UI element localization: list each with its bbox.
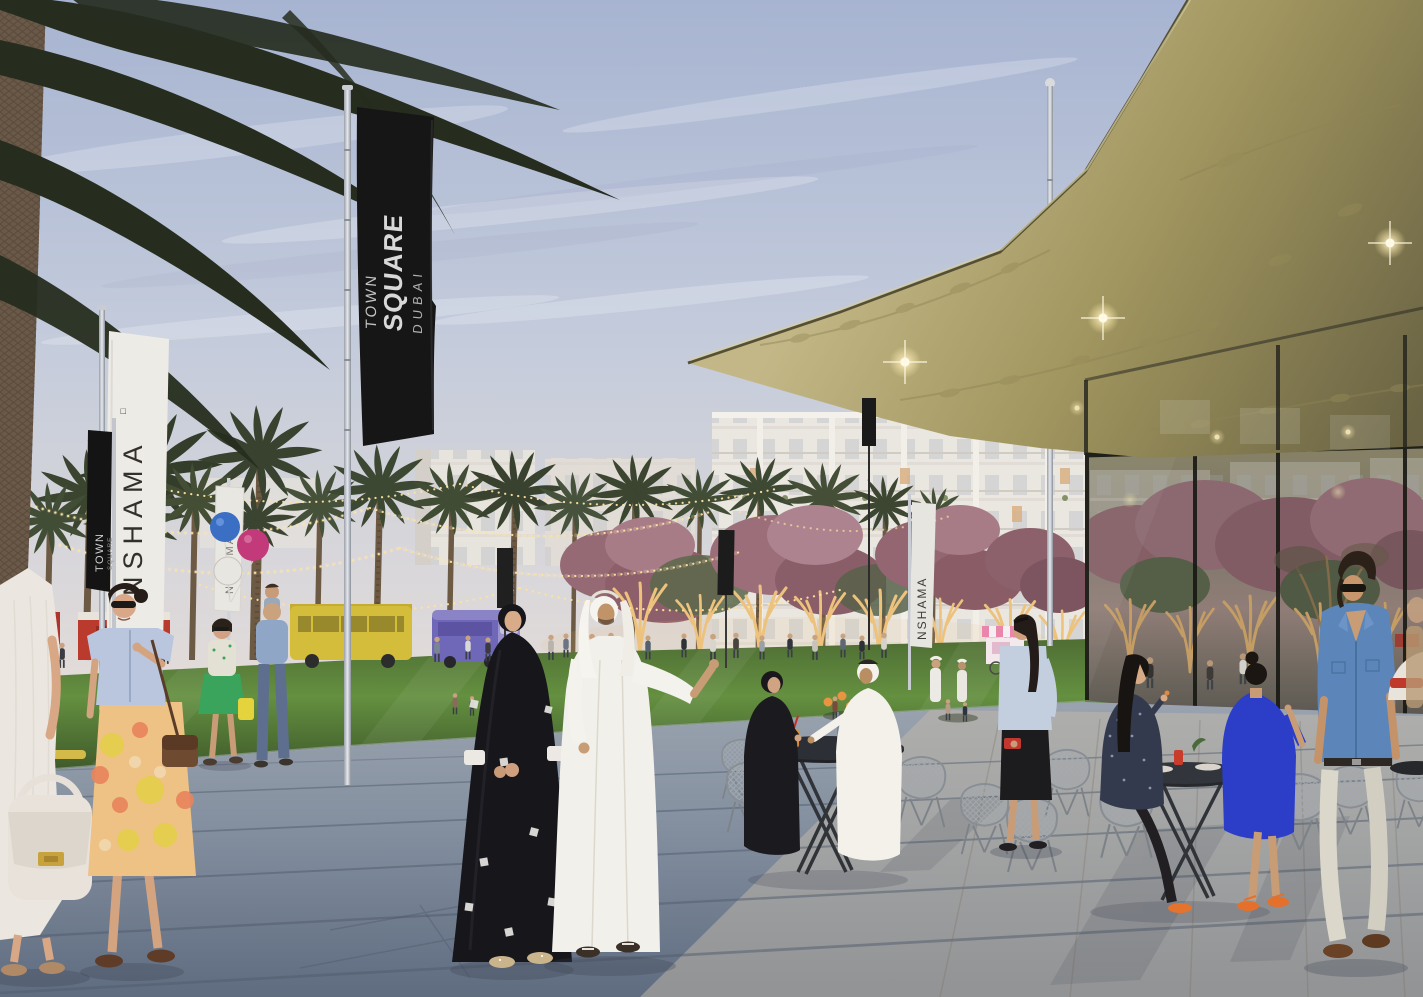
banner-nshama-park-text: NSHAMA [915, 577, 929, 640]
balloon-blue [210, 512, 240, 542]
balloon-white [214, 557, 242, 585]
banner-nshama-left-text: NSHAMA [118, 438, 148, 596]
blue-shirt [96, 628, 166, 705]
banner-main-line3: DUBAI [410, 268, 425, 334]
banner-town-small-line1: TOWN [94, 533, 106, 572]
cropped-figure-right-edge [1406, 597, 1423, 708]
sunglasses [1340, 584, 1366, 592]
banner-town-small-line2: SQUARE [107, 537, 114, 570]
balloon-magenta [237, 529, 269, 561]
speaker-on-pole [862, 398, 876, 446]
sunglasses [111, 601, 136, 608]
scene-canvas: TOWN SQUARE DUBAI NSHAMA □ TOWN SQUARE N… [0, 0, 1423, 997]
banner-nshama-left-mark: □ [118, 408, 128, 414]
banner-main-line2: SQUARE [378, 212, 408, 332]
plaza-rendering: TOWN SQUARE DUBAI NSHAMA □ TOWN SQUARE N… [0, 0, 1423, 997]
